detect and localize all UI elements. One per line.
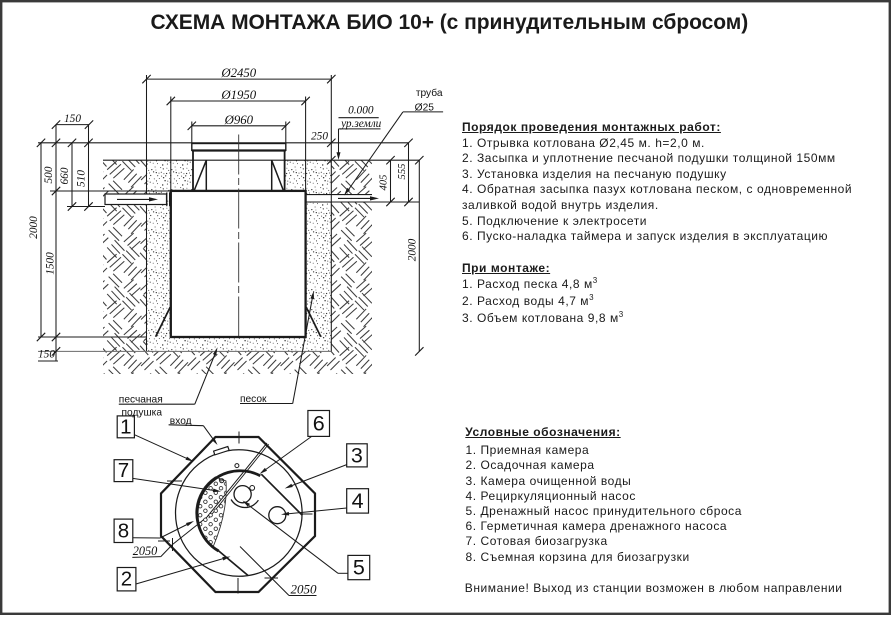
svg-text:150: 150 bbox=[38, 349, 55, 361]
svg-text:Ø1950: Ø1950 bbox=[220, 88, 256, 102]
svg-text:труба: труба bbox=[416, 87, 443, 99]
svg-text:8: 8 bbox=[118, 519, 129, 542]
svg-text:1500: 1500 bbox=[45, 252, 57, 275]
svg-text:7: 7 bbox=[118, 459, 129, 482]
svg-text:5: 5 bbox=[353, 556, 365, 580]
svg-text:500: 500 bbox=[43, 166, 55, 183]
svg-text:0.000: 0.000 bbox=[348, 105, 374, 117]
svg-text:вход: вход bbox=[170, 416, 192, 427]
svg-text:405: 405 bbox=[379, 175, 390, 191]
svg-text:250: 250 bbox=[311, 130, 328, 142]
svg-text:подушка: подушка bbox=[122, 408, 163, 419]
svg-text:2050: 2050 bbox=[133, 544, 158, 558]
svg-text:песок: песок bbox=[240, 394, 267, 405]
svg-text:555: 555 bbox=[397, 164, 408, 180]
svg-text:510: 510 bbox=[76, 170, 88, 187]
svg-text:Ø2450: Ø2450 bbox=[220, 66, 256, 80]
svg-text:2000: 2000 bbox=[407, 238, 419, 261]
svg-text:660: 660 bbox=[59, 167, 71, 184]
svg-text:3: 3 bbox=[351, 443, 363, 467]
svg-text:Ø960: Ø960 bbox=[224, 113, 254, 127]
svg-text:2: 2 bbox=[121, 568, 132, 591]
svg-text:4: 4 bbox=[352, 489, 364, 513]
svg-text:1: 1 bbox=[120, 415, 131, 438]
svg-text:6: 6 bbox=[313, 411, 325, 435]
svg-text:2000: 2000 bbox=[28, 216, 40, 239]
svg-text:150: 150 bbox=[64, 113, 81, 125]
svg-text:2050: 2050 bbox=[291, 582, 318, 597]
svg-text:ур.земли: ур.земли bbox=[340, 118, 382, 130]
svg-text:песчаная: песчаная bbox=[119, 395, 163, 406]
svg-text:Ø25: Ø25 bbox=[415, 103, 435, 114]
